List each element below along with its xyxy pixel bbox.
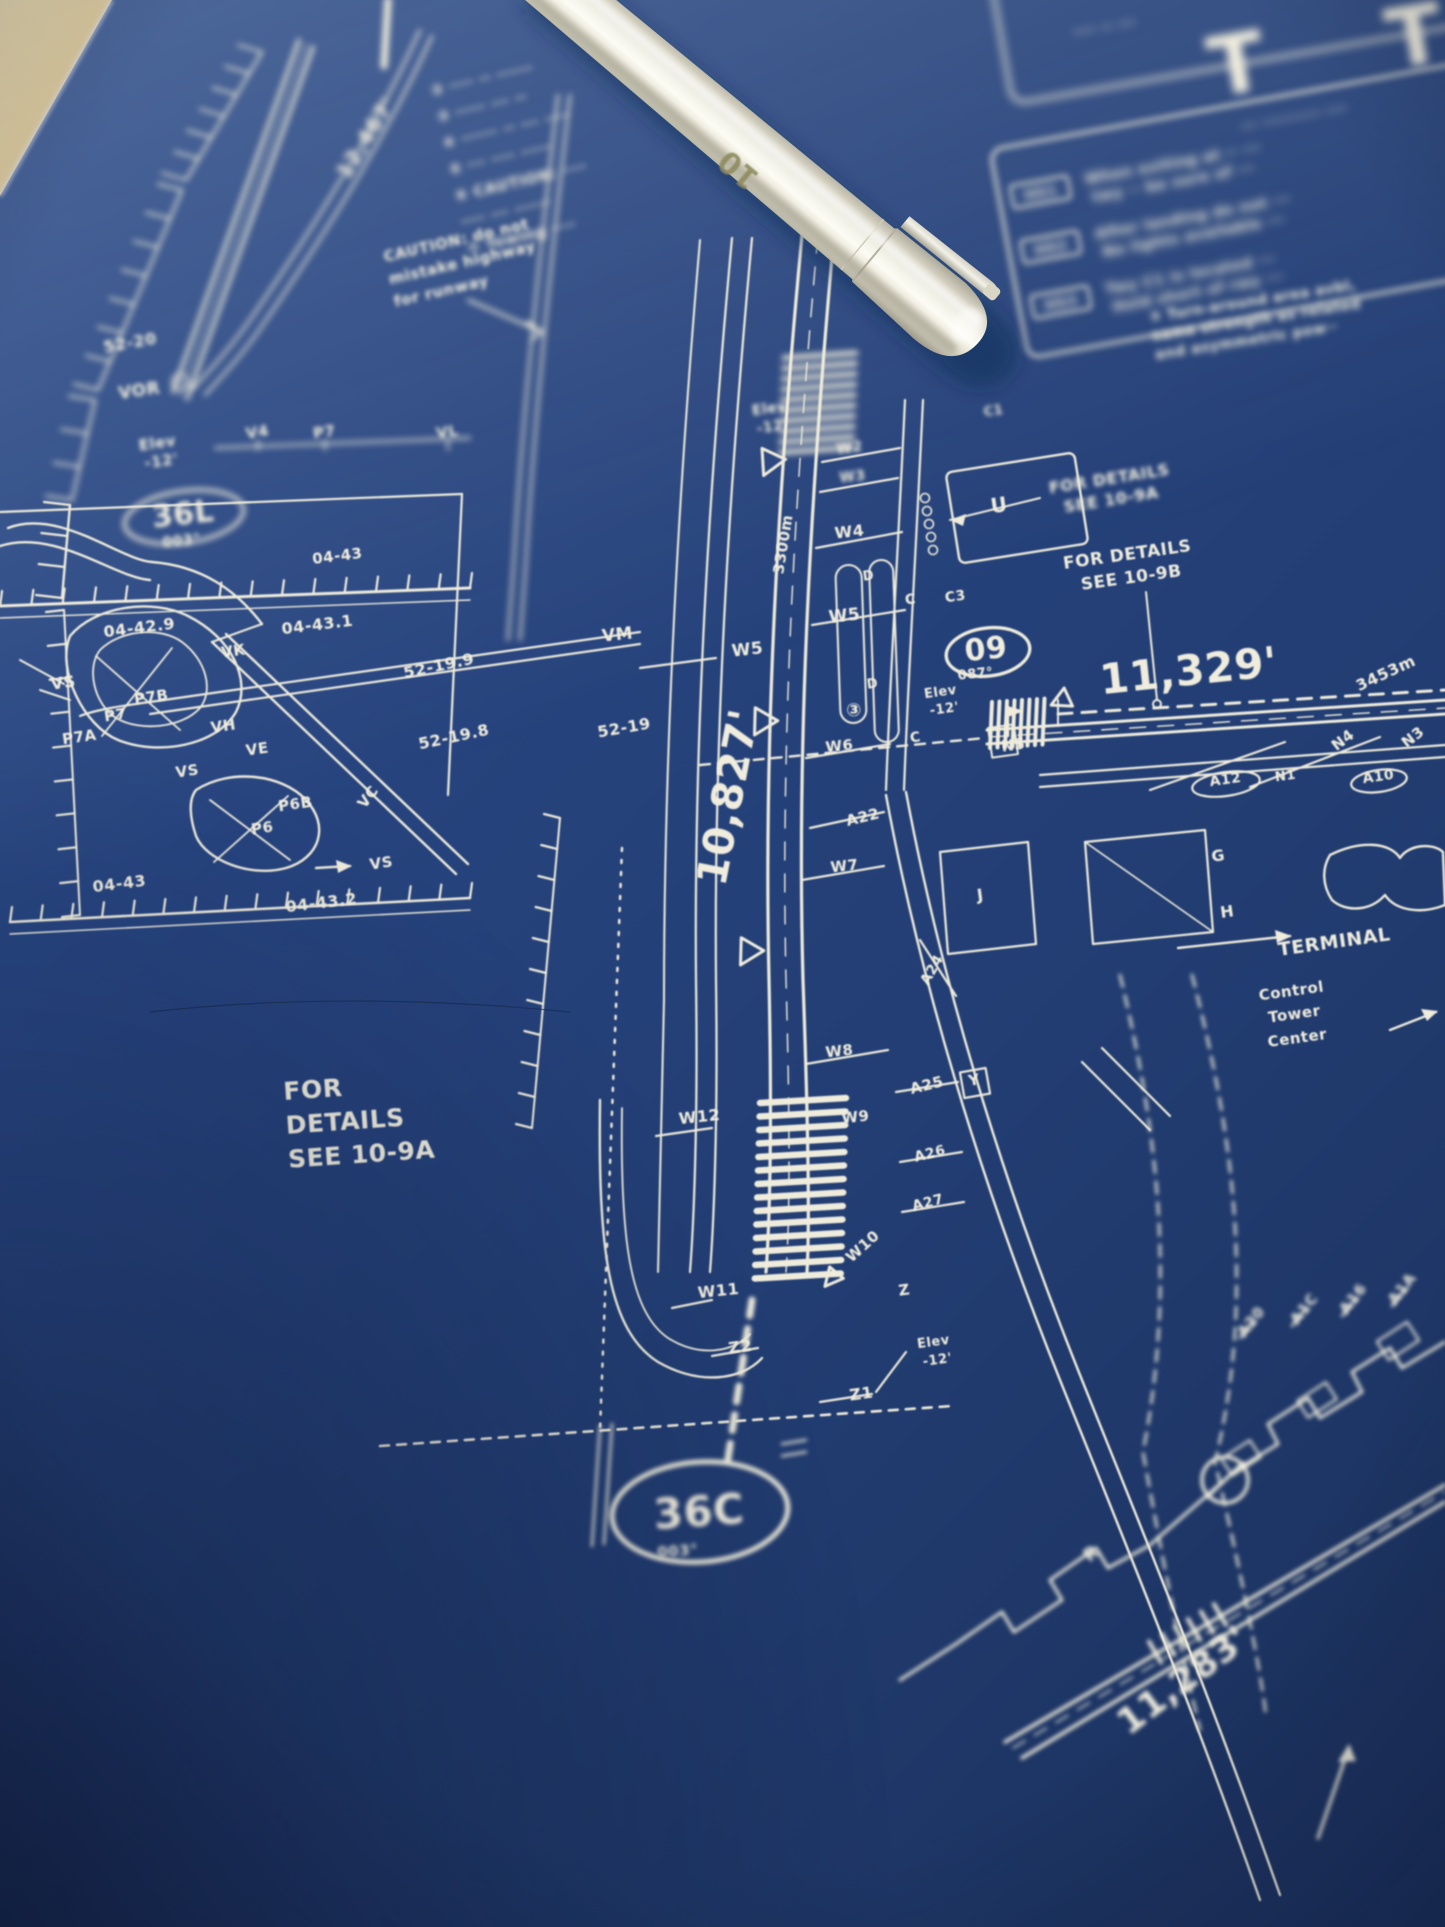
blueprint-scene: ··· ··········· ····HS1When exiting at ·…	[0, 0, 1445, 1927]
vignette-corner	[0, 0, 1445, 1927]
photo-of-blueprint: ··· ··········· ····HS1When exiting at ·…	[0, 0, 1445, 1927]
